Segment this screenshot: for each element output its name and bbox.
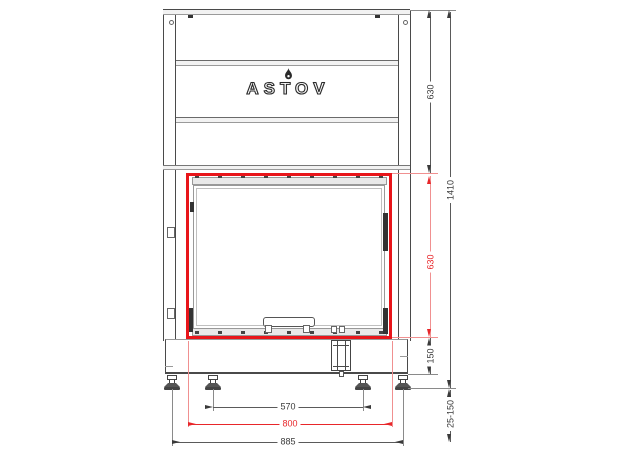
frame-divider-3 — [163, 165, 410, 170]
brand-logo-text: ASTOV — [240, 80, 336, 97]
air-lock-bracket-line-bottom — [333, 366, 349, 367]
base-step-left — [165, 366, 173, 367]
arrow-right-icon — [172, 440, 180, 444]
base-body — [165, 339, 408, 374]
arrow-up-icon — [447, 10, 451, 18]
fixing-dot-right — [375, 15, 380, 18]
dim-base-label: 150 — [426, 345, 437, 366]
ext-opening-left — [188, 341, 189, 427]
frame-right-post — [398, 10, 411, 341]
brand-logo: ASTOV — [240, 68, 336, 97]
air-lock-bracket-wall-right — [345, 341, 346, 370]
arrow-right-icon — [188, 422, 196, 426]
base-step-right — [400, 356, 408, 357]
fixing-dot-left — [188, 15, 193, 18]
hole-right — [403, 20, 408, 25]
dim-leg-range-label: 25-150 — [446, 397, 457, 431]
opening-highlight-box — [186, 173, 392, 339]
adjustable-foot-2 — [205, 375, 221, 390]
arrow-down-icon — [447, 380, 451, 388]
hinge-top — [167, 227, 175, 238]
air-lock-bracket-line-top — [333, 345, 349, 346]
dim-overall-width-label: 885 — [277, 437, 298, 448]
dim-opening-width-label: 800 — [279, 419, 300, 430]
frame-divider-1 — [176, 60, 398, 66]
arrow-down-icon — [427, 366, 431, 374]
arrow-left-icon — [384, 422, 392, 426]
adjustable-foot-1 — [164, 375, 180, 390]
dim-opening-height-label: 630 — [426, 251, 437, 272]
hole-left — [169, 20, 174, 25]
air-lock-pin — [339, 371, 344, 377]
frame-top-cap — [163, 9, 410, 15]
air-lock-bracket-wall-left — [337, 341, 338, 370]
arrow-up-icon — [427, 176, 431, 184]
dim-leg-spacing-label: 570 — [277, 402, 298, 413]
arrow-down-icon — [427, 165, 431, 173]
frame-left-post — [163, 10, 176, 341]
ext-opening-bottom — [392, 337, 438, 338]
ext-opening-top — [392, 173, 438, 174]
fireplace-technical-drawing: ASTOV 630 — [0, 0, 624, 460]
arrow-left-icon — [363, 405, 371, 409]
adjustable-foot-3 — [355, 375, 371, 390]
hinge-bottom — [167, 308, 175, 319]
arrow-down-icon — [447, 434, 451, 442]
ext-leg1 — [172, 389, 173, 446]
arrow-up-icon — [427, 10, 431, 18]
arrow-right-icon — [205, 405, 213, 409]
ext-leg4 — [403, 389, 404, 446]
arrow-down-icon — [427, 329, 431, 337]
ext-opening-right — [392, 341, 393, 427]
arrow-left-icon — [395, 440, 403, 444]
dim-header-label: 630 — [426, 81, 437, 102]
dim-total-height-label: 1410 — [446, 177, 457, 203]
frame-divider-2 — [176, 117, 398, 123]
ext-base-bottom — [408, 374, 438, 375]
arrow-up-icon — [447, 389, 451, 397]
